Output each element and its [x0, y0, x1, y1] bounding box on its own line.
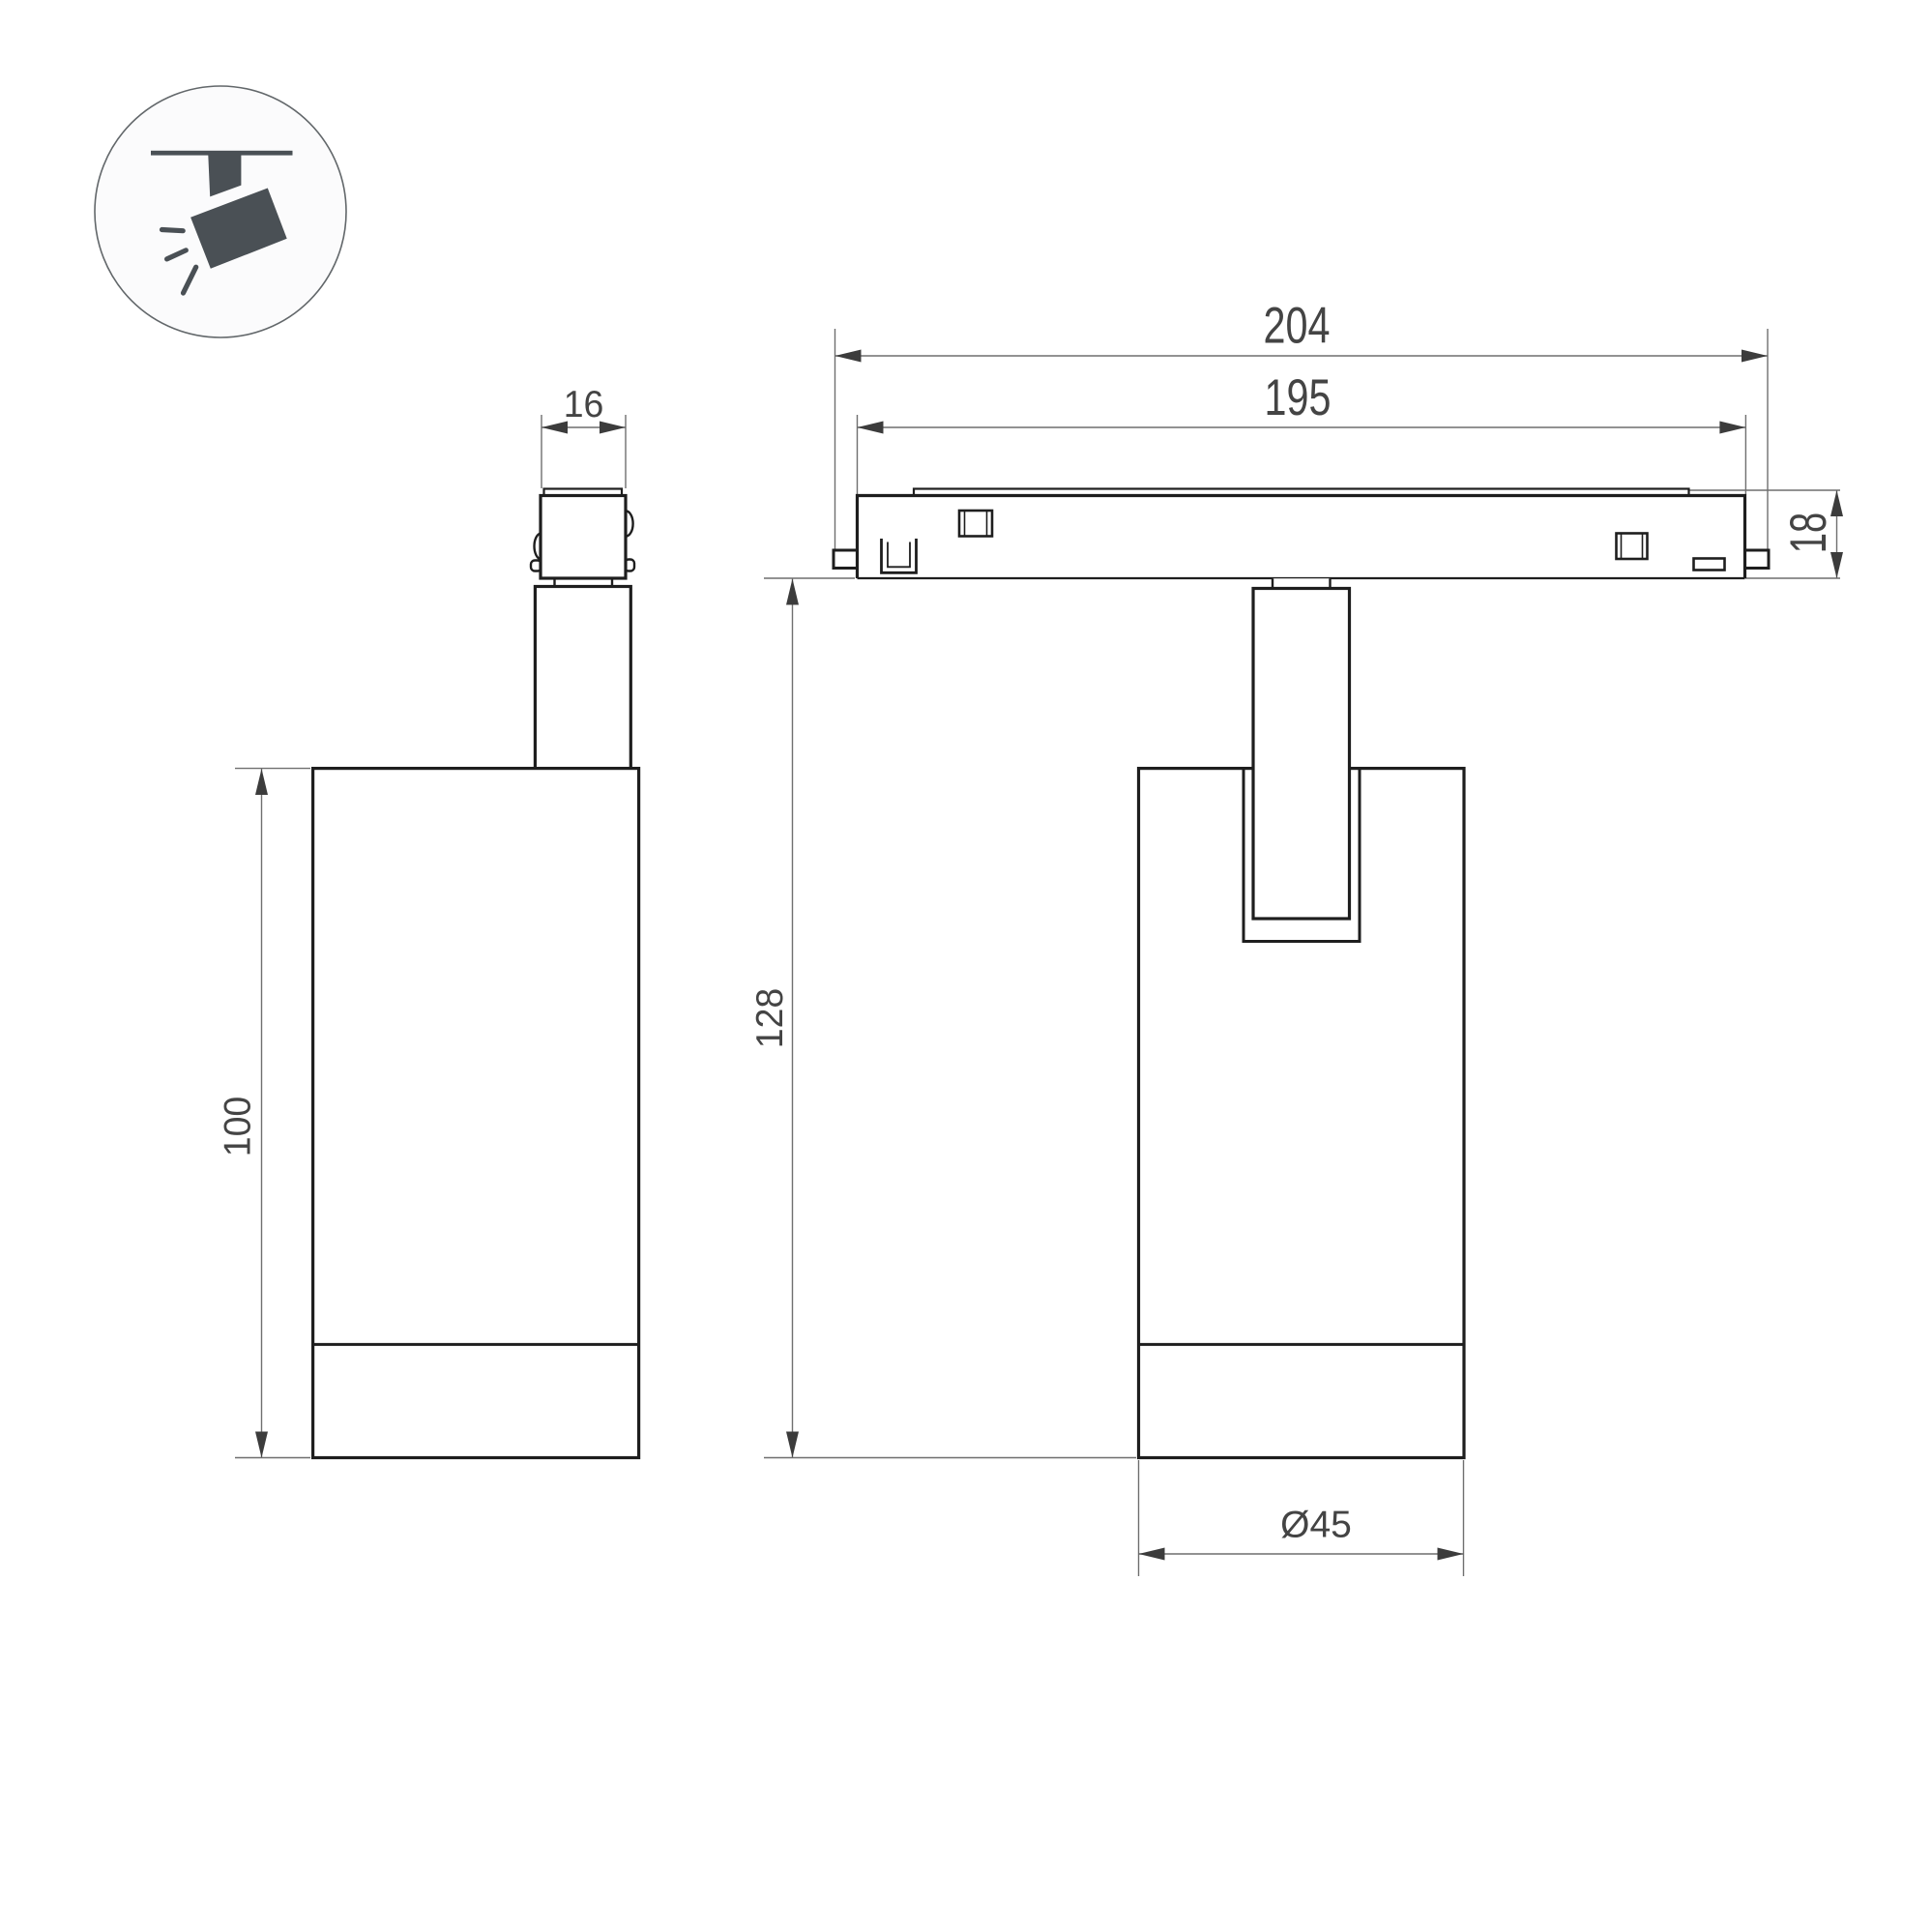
svg-text:18: 18	[1779, 512, 1837, 553]
svg-text:128: 128	[748, 988, 791, 1048]
svg-text:100: 100	[217, 1097, 259, 1156]
svg-text:204: 204	[1264, 298, 1331, 355]
svg-text:195: 195	[1265, 369, 1332, 426]
svg-text:16: 16	[564, 383, 604, 425]
svg-text:Ø45: Ø45	[1280, 1505, 1352, 1546]
